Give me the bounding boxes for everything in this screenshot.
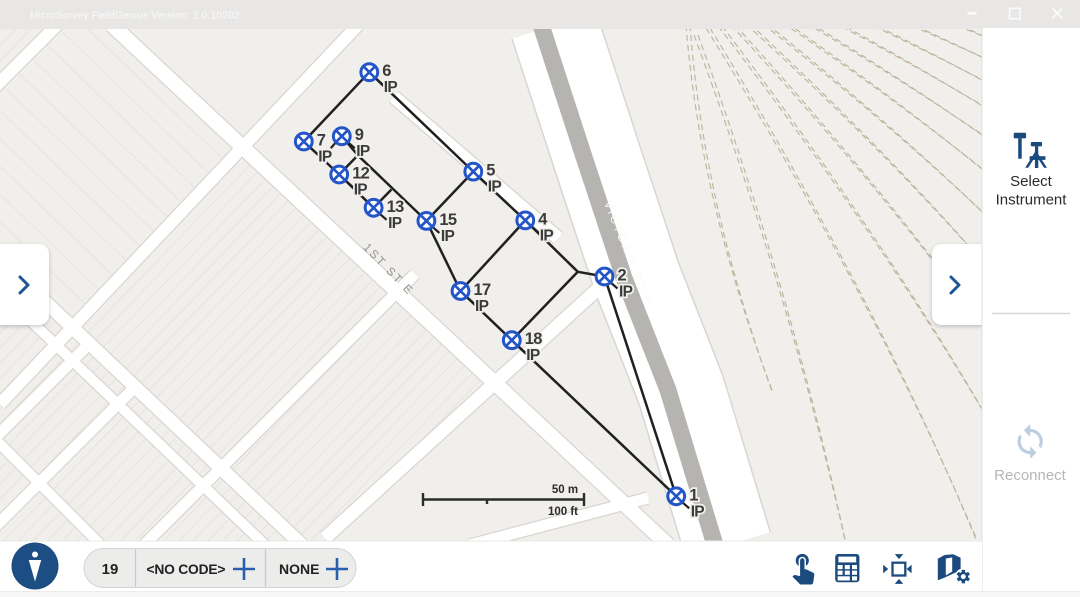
svg-text:IP: IP	[388, 215, 402, 232]
svg-text:Select: Select	[1010, 173, 1053, 190]
svg-text:MicroSurvey FieldGenius Versio: MicroSurvey FieldGenius Version: 1.0.102…	[30, 11, 240, 22]
svg-text:5: 5	[486, 162, 495, 180]
svg-text:IP: IP	[619, 284, 633, 301]
svg-text:<NO CODE>: <NO CODE>	[147, 562, 226, 577]
svg-text:9: 9	[355, 126, 364, 144]
svg-text:IP: IP	[441, 228, 455, 245]
svg-text:IP: IP	[540, 227, 554, 244]
svg-text:50 m: 50 m	[552, 484, 578, 496]
svg-text:IP: IP	[488, 179, 502, 196]
svg-text:IP: IP	[691, 503, 705, 520]
svg-text:17: 17	[474, 281, 491, 299]
svg-text:100 ft: 100 ft	[548, 506, 578, 518]
svg-text:19: 19	[102, 561, 119, 578]
svg-text:7: 7	[317, 132, 326, 150]
svg-text:15: 15	[439, 211, 456, 229]
svg-text:Reconnect: Reconnect	[994, 467, 1067, 484]
svg-text:13: 13	[387, 198, 404, 216]
svg-text:IP: IP	[318, 149, 332, 166]
svg-text:1: 1	[689, 486, 698, 504]
svg-text:6: 6	[382, 62, 391, 80]
svg-text:12: 12	[352, 165, 369, 183]
svg-text:2: 2	[618, 267, 627, 285]
svg-text:18: 18	[525, 330, 542, 348]
svg-text:IP: IP	[354, 182, 368, 199]
svg-text:IP: IP	[356, 143, 370, 160]
svg-text:IP: IP	[384, 79, 398, 96]
svg-text:IP: IP	[475, 298, 489, 315]
svg-text:NONE: NONE	[279, 561, 319, 577]
svg-text:IP: IP	[526, 347, 540, 364]
svg-text:Instrument: Instrument	[996, 192, 1068, 209]
